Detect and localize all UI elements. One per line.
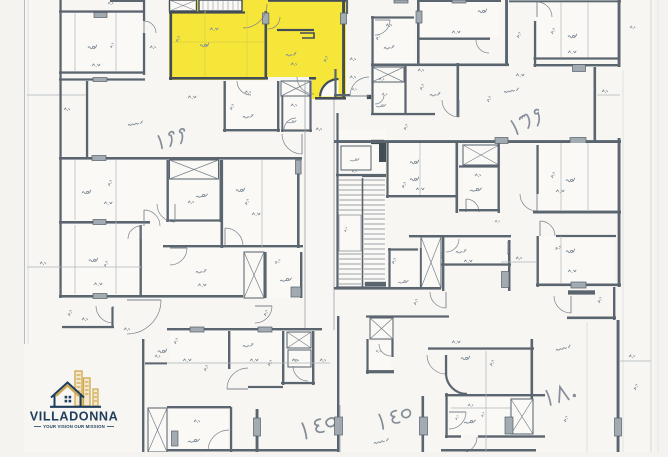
svg-text:YOUR VISION OUR MISSION: YOUR VISION OUR MISSION (43, 424, 105, 429)
svg-text:VILLADONNA: VILLADONNA (30, 410, 119, 424)
